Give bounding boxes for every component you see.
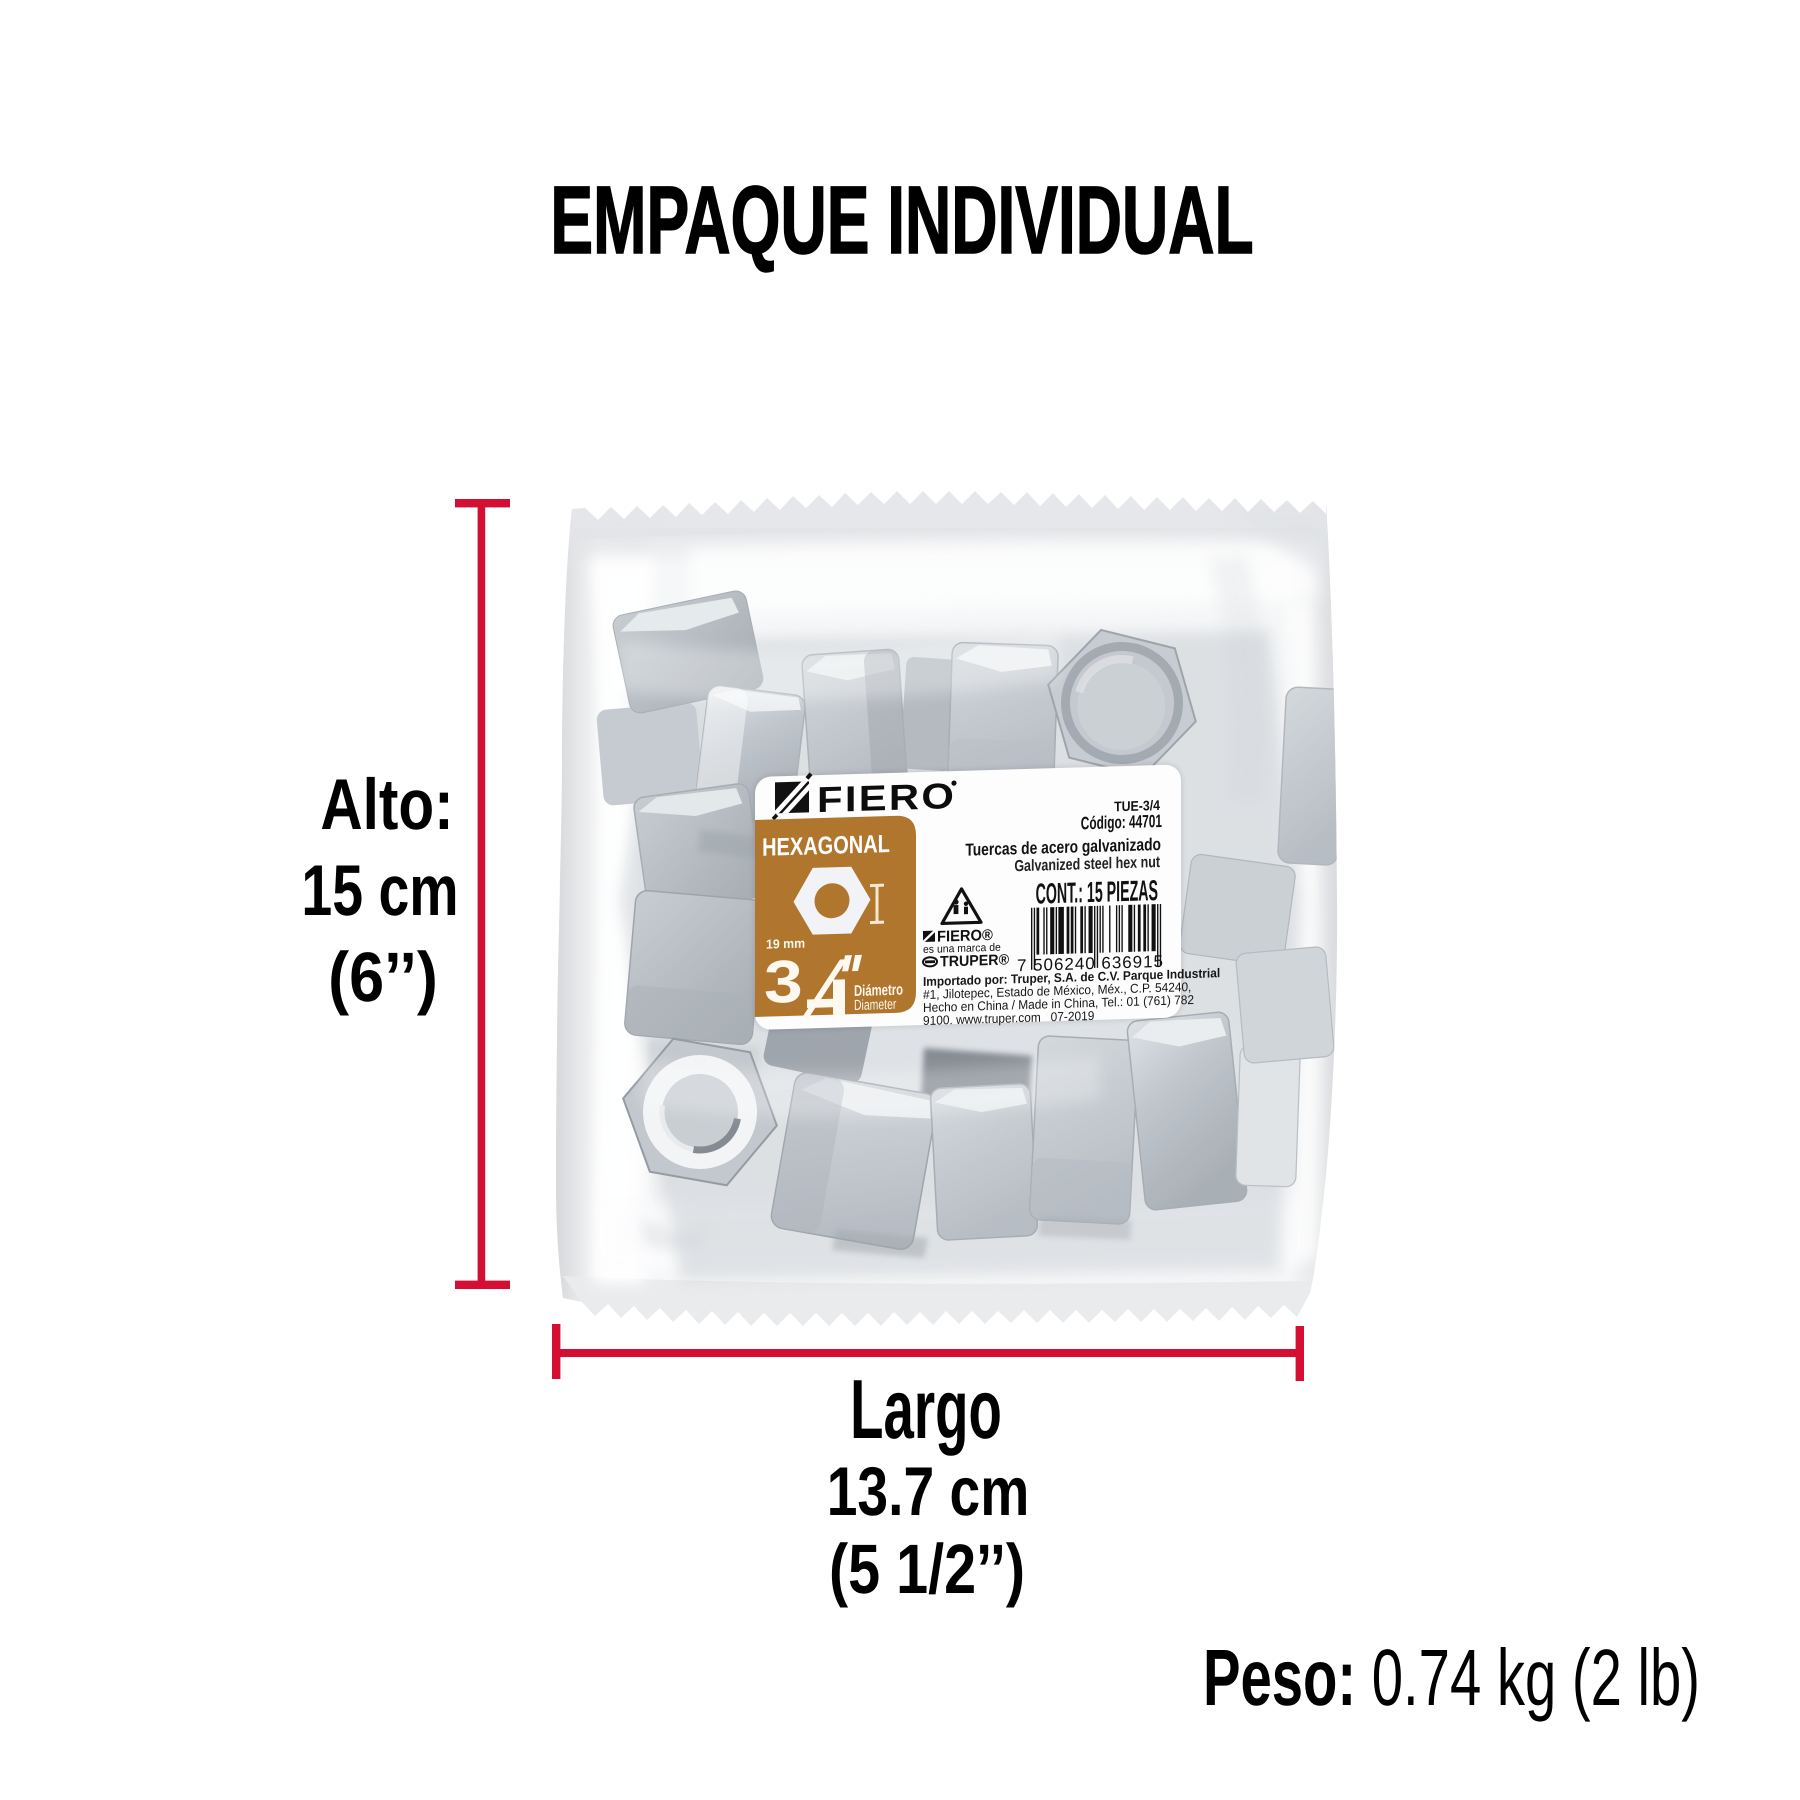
svg-text:(5 1/2’’): (5 1/2’’) [829,1530,1025,1608]
svg-text:TRUPER®: TRUPER® [940,951,1009,970]
svg-text:3: 3 [764,948,803,1016]
svg-text:Largo: Largo [850,1362,1002,1456]
svg-text:FIERO: FIERO [817,775,956,820]
svg-text:Alto:: Alto: [320,765,453,845]
svg-text:15 cm: 15 cm [301,851,458,931]
svg-text:HEXAGONAL: HEXAGONAL [762,830,890,862]
svg-text:Peso: 0.74 kg (2 lb): Peso: 0.74 kg (2 lb) [1203,1633,1700,1722]
svg-text:Código: 44701: Código: 44701 [1081,811,1162,833]
svg-text:Diameter: Diameter [854,997,896,1014]
svg-text:EMPAQUE INDIVIDUAL: EMPAQUE INDIVIDUAL [550,167,1253,274]
svg-text:13.7 cm: 13.7 cm [827,1453,1030,1530]
svg-text:(6’’): (6’’) [328,938,438,1016]
